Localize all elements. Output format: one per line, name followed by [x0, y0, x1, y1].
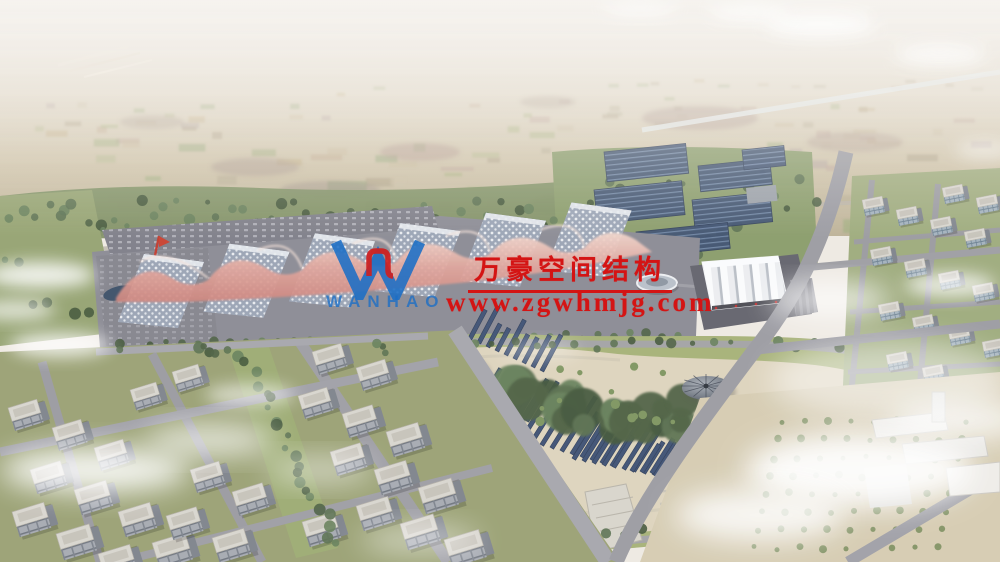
- aerial-render-image: WANHAO 万豪空间结构 www.zgwhmjg.com: [0, 0, 1000, 562]
- rendered-scene: [0, 0, 1000, 562]
